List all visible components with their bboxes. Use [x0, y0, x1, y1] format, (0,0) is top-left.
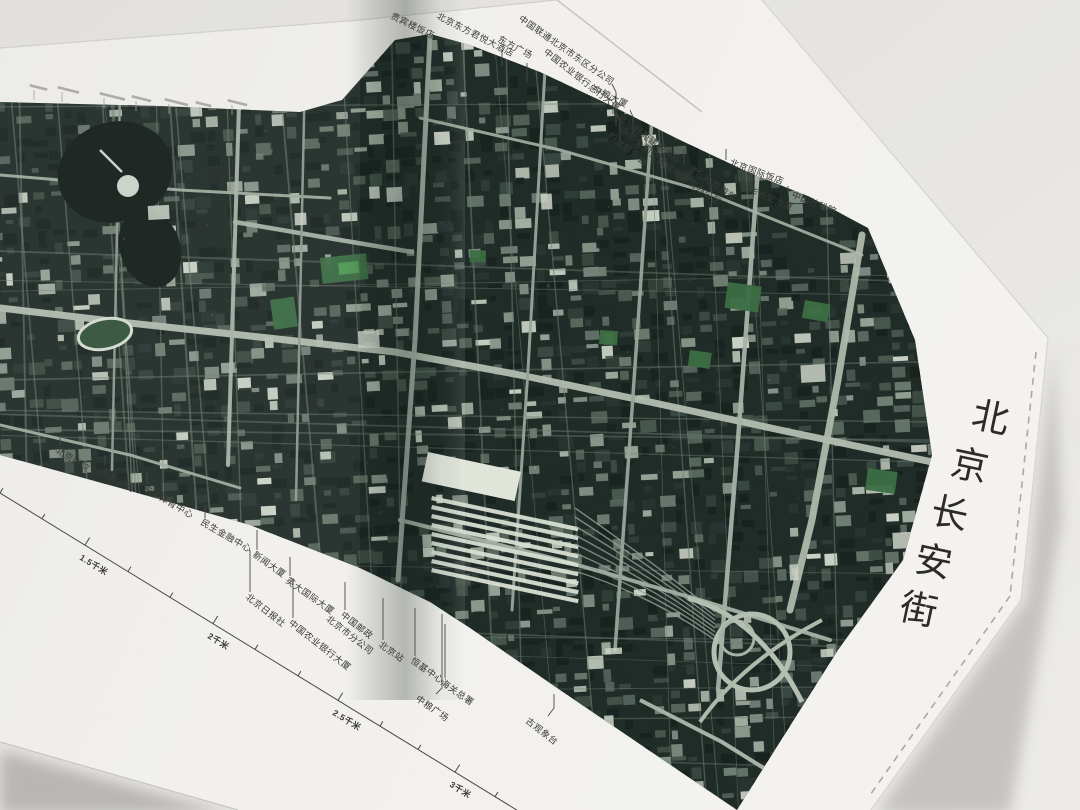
- scene-canvas: 贵宾楼饭店北京东方君悦大酒店东方广场中国联通北京市东区分公司中国农业银行总行大厦…: [0, 0, 1080, 810]
- photo-of-open-map-book: 贵宾楼饭店北京东方君悦大酒店东方广场中国联通北京市东区分公司中国农业银行总行大厦…: [0, 0, 1080, 810]
- fold-shading: [0, 0, 465, 700]
